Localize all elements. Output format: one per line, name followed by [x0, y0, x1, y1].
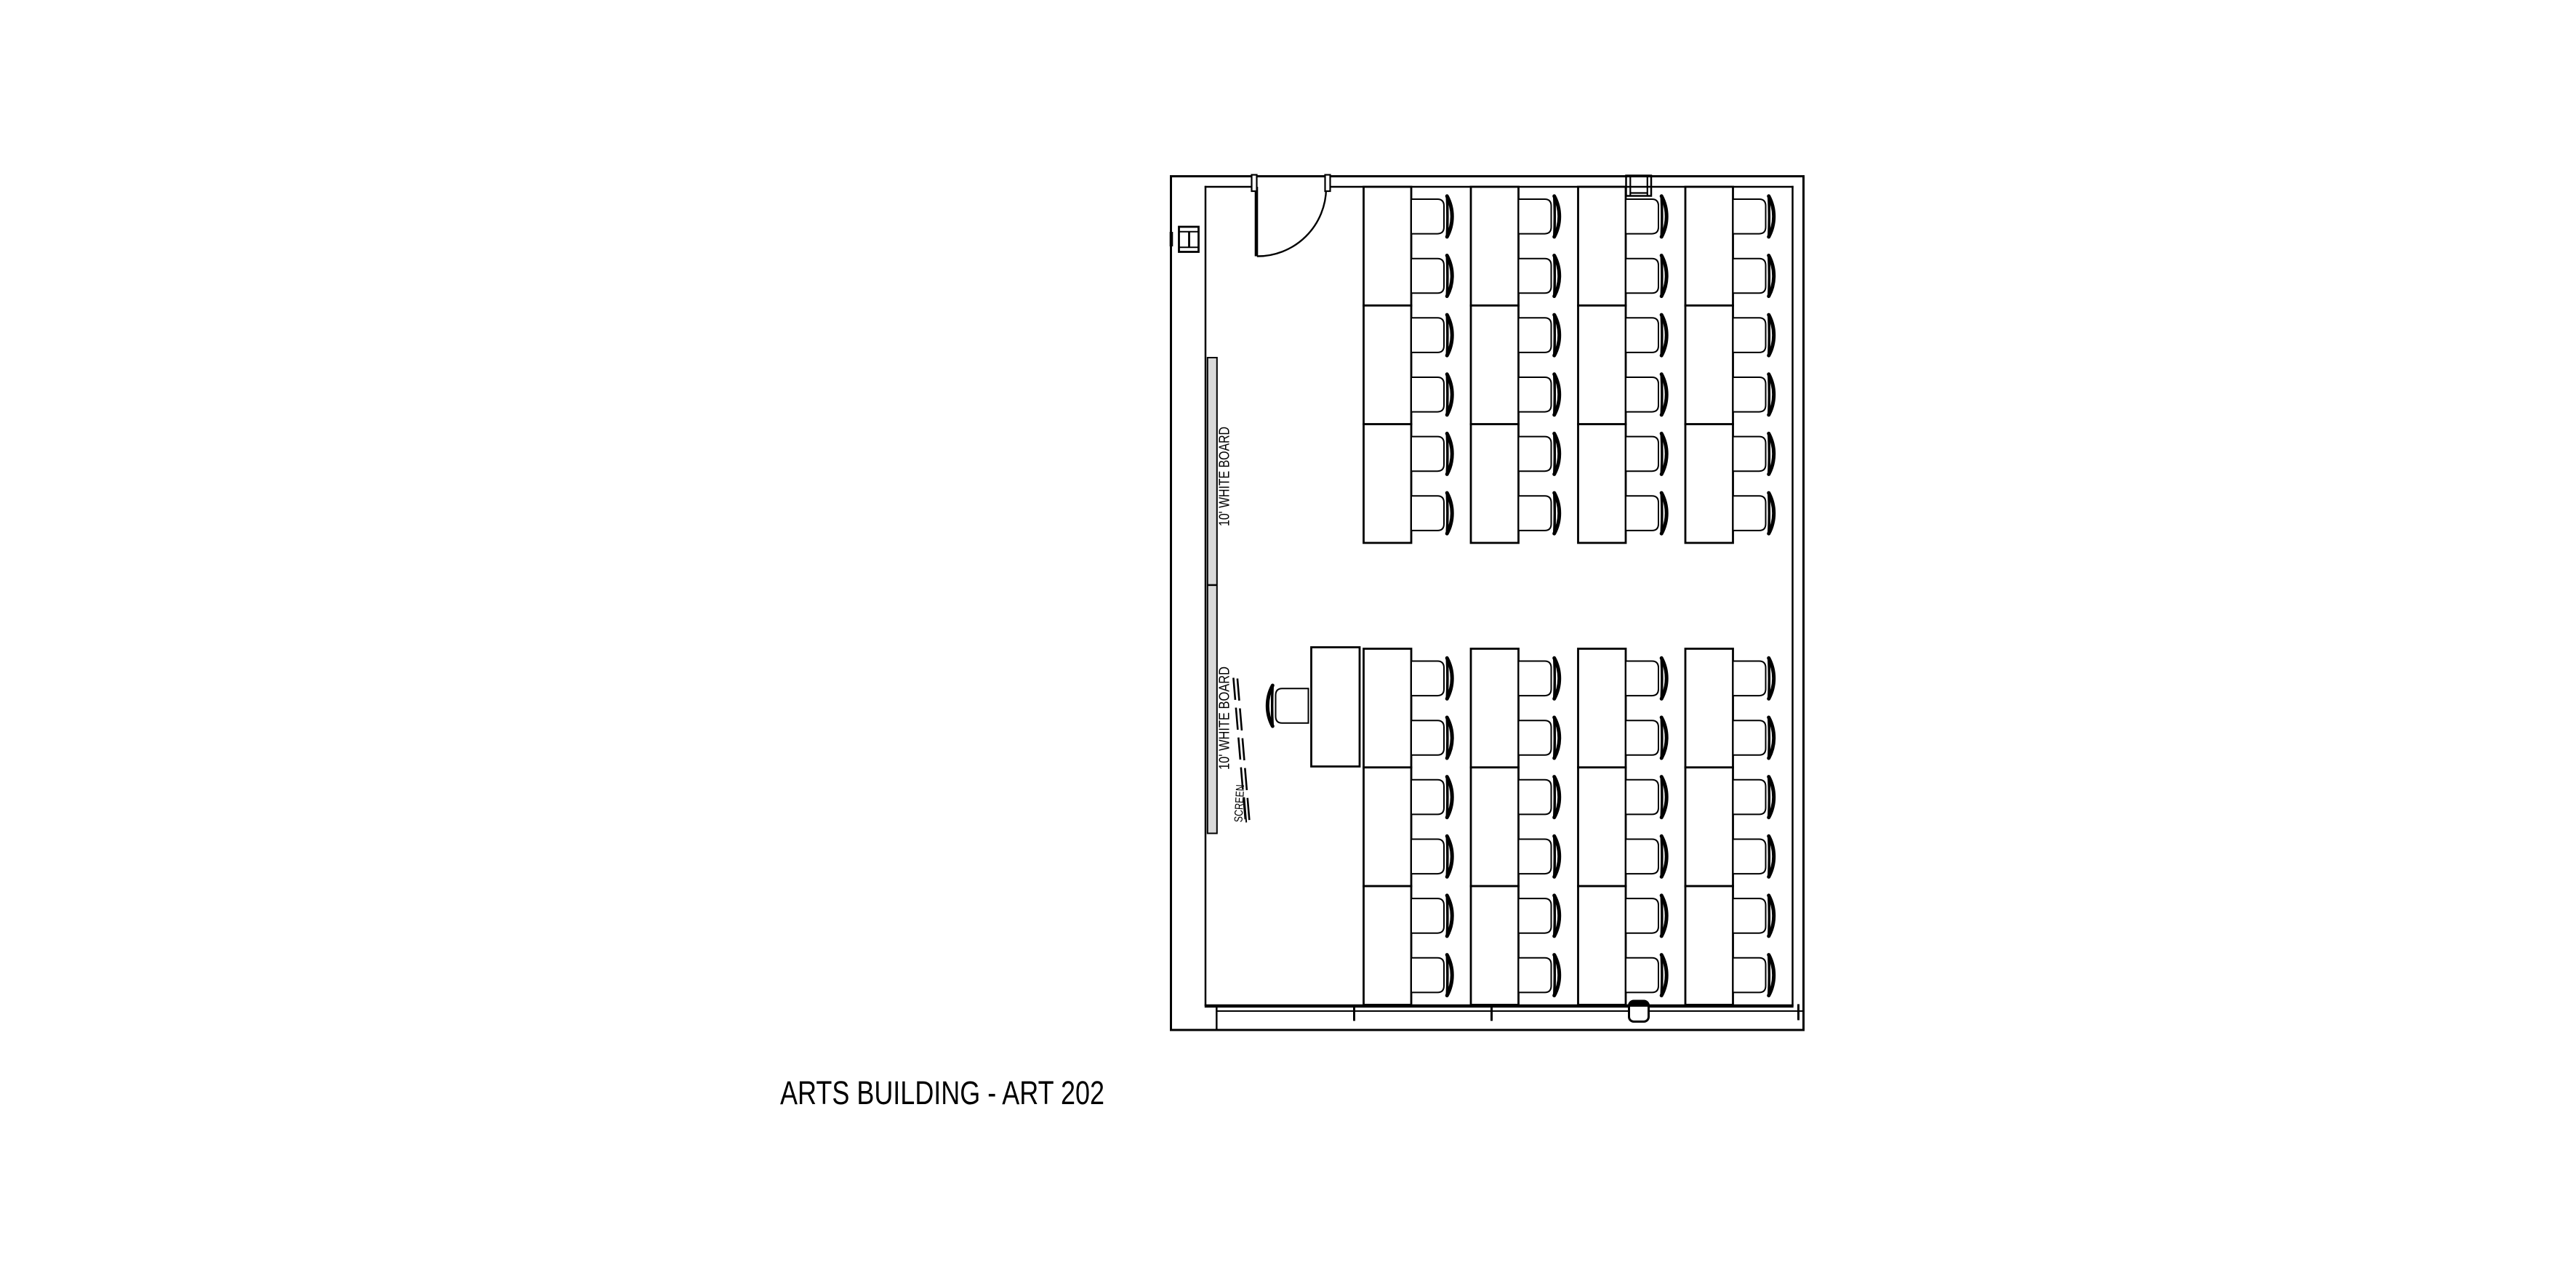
- svg-text:10' WHITE BOARD: 10' WHITE BOARD: [1217, 427, 1233, 526]
- svg-text:10' WHITE BOARD: 10' WHITE BOARD: [1217, 667, 1233, 770]
- svg-text:ARTS BUILDING - ART 202: ARTS BUILDING - ART 202: [780, 1074, 1104, 1111]
